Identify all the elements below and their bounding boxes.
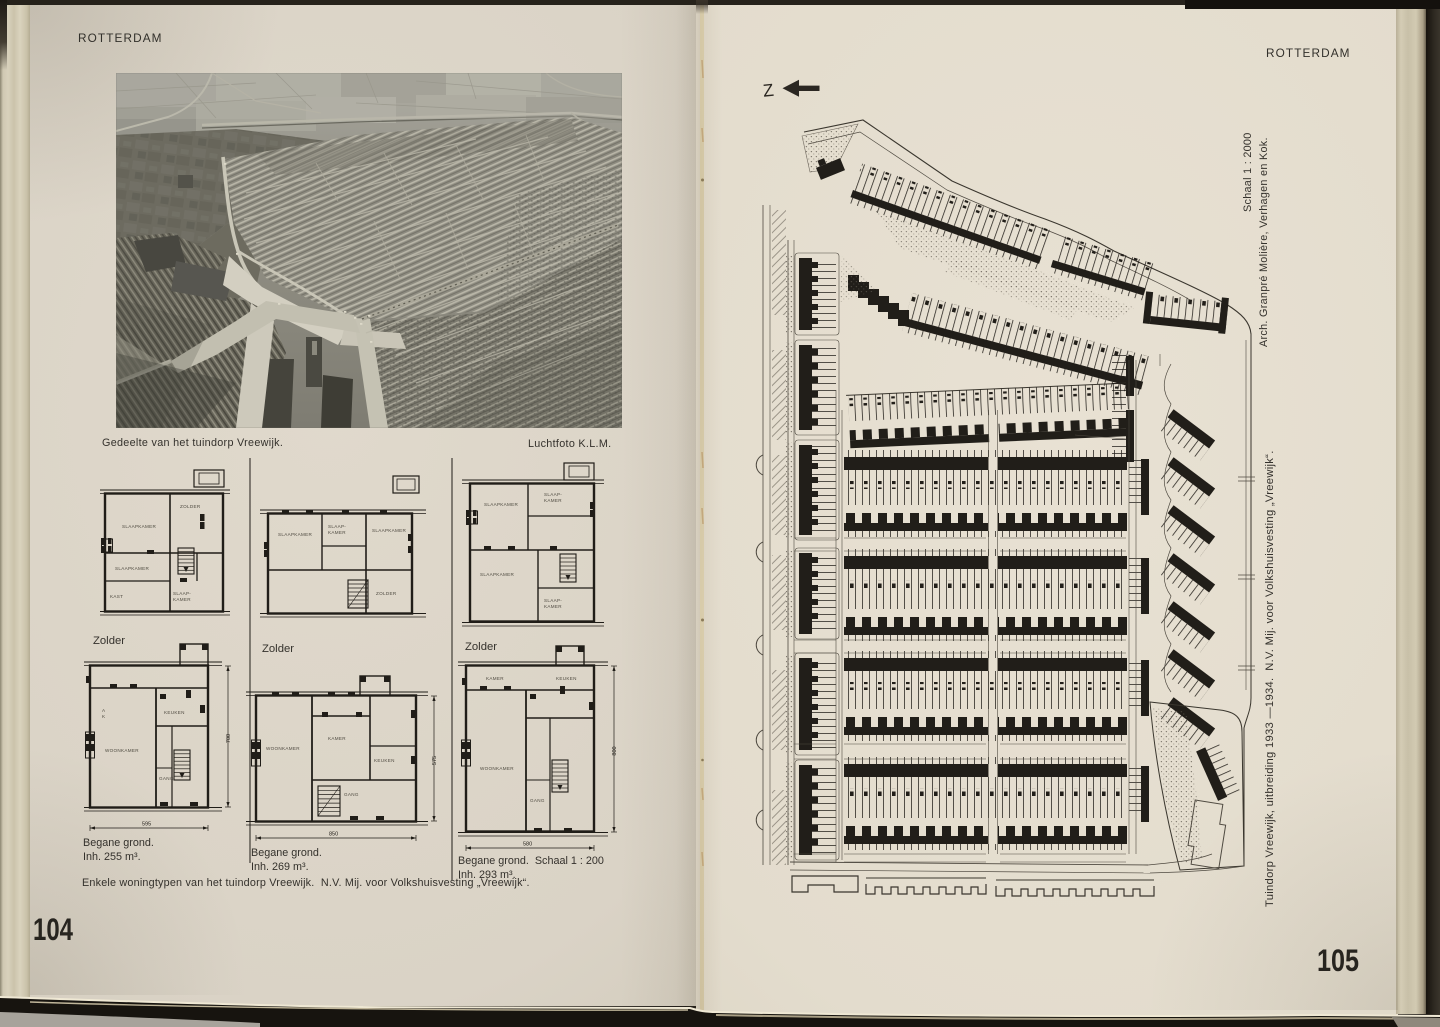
- svg-text:KAMER: KAMER: [544, 498, 562, 503]
- svg-text:SLAAPKAMER: SLAAPKAMER: [115, 566, 150, 571]
- svg-text:WOONKAMER: WOONKAMER: [480, 766, 514, 771]
- svg-text:GANG: GANG: [344, 792, 359, 797]
- svg-text:KAST: KAST: [110, 594, 123, 599]
- svg-text:SLAAPKAMER: SLAAPKAMER: [484, 502, 519, 507]
- svg-text:GANG: GANG: [159, 776, 174, 781]
- svg-text:SLAAPKAMER: SLAAPKAMER: [122, 524, 157, 529]
- svg-text:ZOLDER: ZOLDER: [376, 591, 397, 596]
- svg-text:KEUKEN: KEUKEN: [374, 758, 395, 763]
- svg-text:WOONKAMER: WOONKAMER: [105, 748, 139, 753]
- svg-text:KAMER: KAMER: [328, 736, 346, 741]
- svg-text:SLAAPKAMER: SLAAPKAMER: [480, 572, 515, 577]
- svg-text:850: 850: [329, 832, 338, 838]
- svg-text:K: K: [102, 714, 106, 719]
- svg-text:SLAAPKAMER: SLAAPKAMER: [372, 528, 407, 533]
- svg-text:595: 595: [142, 822, 151, 828]
- svg-text:575: 575: [432, 756, 438, 765]
- svg-text:Z: Z: [762, 80, 775, 101]
- svg-text:KAMER: KAMER: [544, 604, 562, 609]
- svg-text:KAMER: KAMER: [328, 530, 346, 535]
- svg-text:800: 800: [612, 746, 618, 755]
- svg-text:700: 700: [226, 734, 232, 743]
- svg-text:SLAAP-: SLAAP-: [544, 598, 562, 603]
- svg-text:KEUKEN: KEUKEN: [556, 676, 577, 681]
- svg-text:SLAAP-: SLAAP-: [328, 524, 346, 529]
- svg-text:ZOLDER: ZOLDER: [180, 504, 201, 509]
- svg-text:WOONKAMER: WOONKAMER: [266, 746, 300, 751]
- svg-text:SLAAP-: SLAAP-: [173, 591, 191, 596]
- svg-text:KEUKEN: KEUKEN: [164, 710, 185, 715]
- svg-text:KAMER: KAMER: [486, 676, 504, 681]
- svg-text:A: A: [102, 708, 106, 713]
- svg-text:KAMER: KAMER: [173, 597, 191, 602]
- svg-text:SLAAP-: SLAAP-: [544, 492, 562, 497]
- svg-text:SLAAPKAMER: SLAAPKAMER: [278, 532, 313, 537]
- svg-text:GANG: GANG: [530, 798, 545, 803]
- svg-text:580: 580: [523, 842, 532, 848]
